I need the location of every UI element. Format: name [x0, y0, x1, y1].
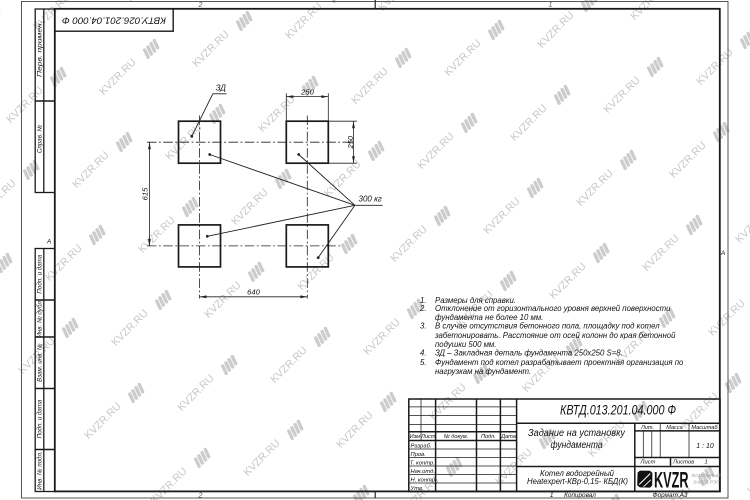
- svg-text:фундамента не более 10 мм.: фундамента не более 10 мм.: [435, 313, 543, 322]
- svg-text:Подп. и дата: Подп. и дата: [37, 254, 44, 293]
- svg-text:Перв. примен.: Перв. примен.: [37, 21, 44, 77]
- svg-text:КОТЕЛЬНЫЙ: КОТЕЛЬНЫЙ: [692, 471, 722, 478]
- svg-text:640: 640: [247, 288, 260, 297]
- svg-text:2: 2: [198, 493, 203, 500]
- svg-text:Инв. № подл.: Инв. № подл.: [37, 451, 44, 489]
- svg-text:Т. контр.: Т. контр.: [410, 460, 435, 466]
- svg-text:ЗАВОД РЭП: ЗАВОД РЭП: [693, 480, 720, 485]
- svg-text:А: А: [46, 239, 51, 246]
- svg-text:Копировал: Копировал: [564, 492, 596, 499]
- svg-text:Лист: Лист: [640, 460, 656, 466]
- svg-text:Изм: Изм: [410, 434, 421, 440]
- svg-text:3.: 3.: [420, 322, 427, 331]
- svg-text:Разраб.: Разраб.: [411, 443, 432, 449]
- svg-text:нагрузкам на фундамент.: нагрузкам на фундамент.: [435, 367, 531, 376]
- svg-text:Подп.: Подп.: [481, 434, 496, 440]
- svg-text:Справ. №: Справ. №: [37, 125, 44, 153]
- svg-text:фундамента: фундамента: [551, 439, 603, 451]
- svg-text:Heatexpert-КВр-0,15- КБД(К): Heatexpert-КВр-0,15- КБД(К): [527, 477, 628, 486]
- svg-text:250: 250: [346, 135, 355, 149]
- svg-text:забетонировать. Расстояние от: забетонировать. Расстояние от осей колон…: [434, 331, 676, 340]
- svg-text:Масштаб: Масштаб: [691, 425, 718, 431]
- svg-text:Взам. инв. №: Взам. инв. №: [37, 343, 44, 382]
- svg-text:КВТД.013.201.04.000 Ф: КВТД.013.201.04.000 Ф: [560, 403, 676, 418]
- svg-text:2: 2: [198, 2, 203, 9]
- svg-text:Лист: Лист: [420, 434, 436, 440]
- svg-text:Пров.: Пров.: [411, 452, 426, 458]
- svg-text:Дата: Дата: [500, 434, 516, 440]
- svg-text:А: А: [720, 250, 725, 257]
- svg-text:300 кг: 300 кг: [359, 194, 382, 203]
- svg-text:Подп. и дата: Подп. и дата: [37, 399, 44, 438]
- svg-text:1: 1: [549, 2, 553, 9]
- svg-text:615: 615: [140, 187, 149, 200]
- svg-text:В случае отсутствия бетонного: В случае отсутствия бетонного пола, площ…: [435, 322, 660, 331]
- svg-text:1: 1: [550, 492, 554, 499]
- svg-text:4.: 4.: [420, 349, 427, 358]
- svg-text:Утв.: Утв.: [410, 486, 424, 492]
- svg-text:KVZR: KVZR: [654, 468, 689, 493]
- svg-text:Листов: Листов: [672, 460, 694, 466]
- svg-text:Н. контр.: Н. контр.: [411, 477, 437, 483]
- svg-text:КВТУ.026.201.04.000 Ф: КВТУ.026.201.04.000 Ф: [62, 15, 166, 26]
- svg-text:2.: 2.: [419, 304, 427, 313]
- svg-text:Формат А3: Формат А3: [653, 492, 688, 499]
- svg-text:ЗД – Закладная деталь фундамен: ЗД – Закладная деталь фундамента 250х250…: [435, 349, 623, 358]
- svg-text:Масса: Масса: [666, 425, 683, 431]
- svg-text:Фундамент под котел разрабатыв: Фундамент под котел разрабатывает проект…: [435, 358, 684, 367]
- svg-text:Нач.отд.: Нач.отд.: [411, 469, 435, 475]
- svg-text:1: 1: [705, 460, 708, 466]
- svg-text:Задание на установку: Задание на установку: [528, 428, 626, 439]
- svg-text:Лит.: Лит.: [640, 425, 654, 431]
- svg-text:1 : 10: 1 : 10: [696, 443, 714, 450]
- svg-text:ЗД: ЗД: [216, 84, 227, 93]
- svg-text:Отклонение от горизонтального: Отклонение от горизонтального уровня вер…: [435, 304, 671, 313]
- svg-text:Инв. № дубл.: Инв. № дубл.: [37, 299, 44, 337]
- svg-text:№ докум.: № докум.: [444, 434, 469, 440]
- svg-text:5.: 5.: [420, 358, 427, 367]
- svg-text:250: 250: [300, 88, 314, 97]
